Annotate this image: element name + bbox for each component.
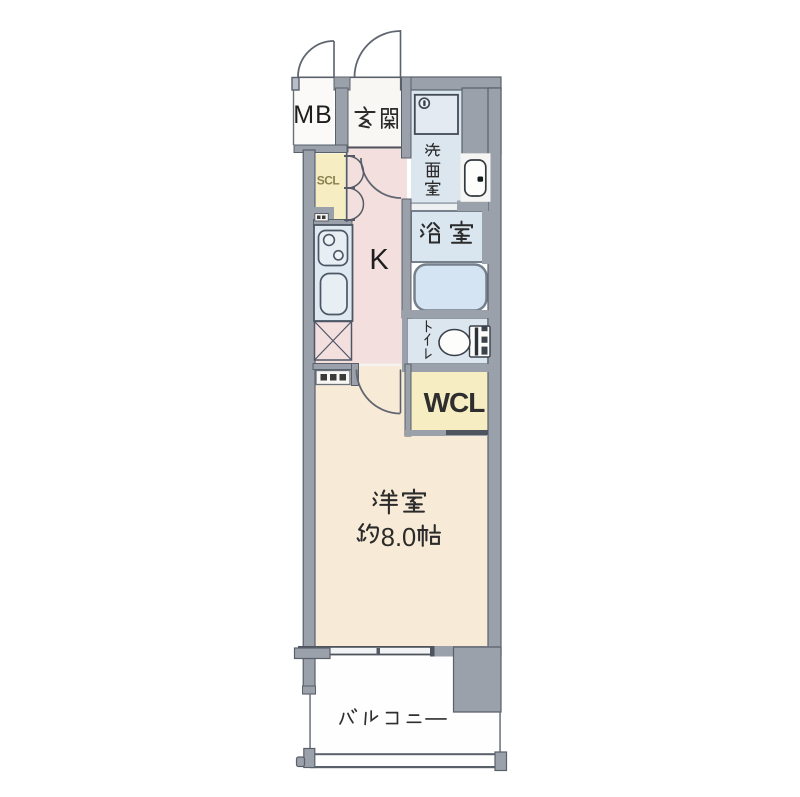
svg-text:MB: MB: [293, 101, 333, 129]
svg-text:WCL: WCL: [424, 387, 486, 418]
svg-text:8.0: 8.0: [381, 524, 416, 552]
svg-text:SCL: SCL: [317, 174, 340, 188]
svg-text:K: K: [369, 244, 389, 276]
